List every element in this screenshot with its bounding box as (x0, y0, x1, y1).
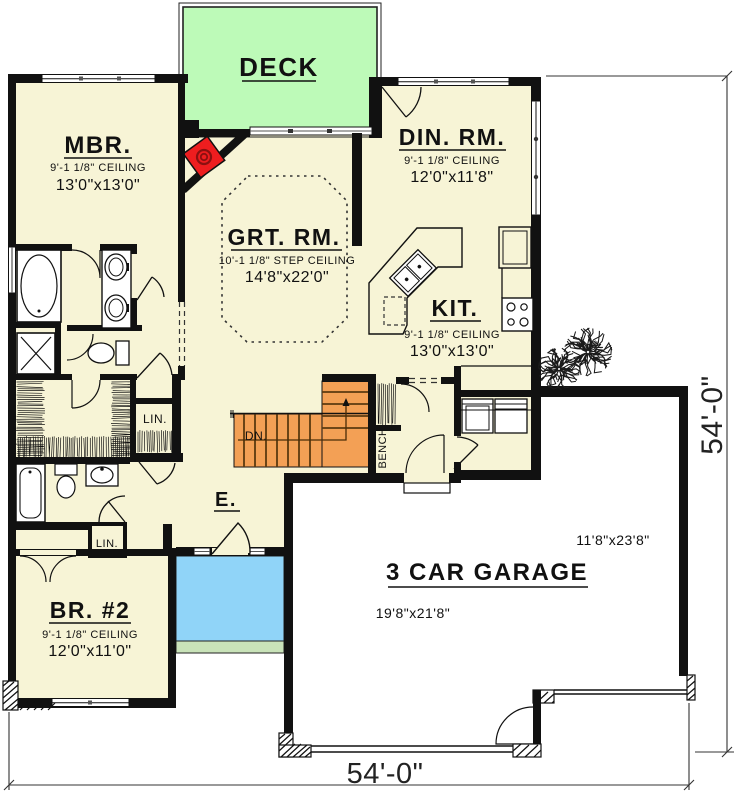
svg-text:11'8"x23'8": 11'8"x23'8" (576, 532, 649, 548)
svg-text:9'-1 1/8" CEILING: 9'-1 1/8" CEILING (42, 629, 138, 641)
svg-text:54'-0": 54'-0" (696, 375, 729, 454)
svg-text:13'0"x13'0": 13'0"x13'0" (56, 177, 140, 194)
svg-text:LIN.: LIN. (96, 538, 118, 550)
svg-text:12'0"x11'8": 12'0"x11'8" (410, 169, 493, 186)
svg-text:E.: E. (215, 489, 237, 511)
svg-text:9'-1 1/8" CEILING: 9'-1 1/8" CEILING (404, 155, 500, 167)
svg-text:10'-1 1/8" STEP CEILING: 10'-1 1/8" STEP CEILING (219, 255, 356, 267)
svg-text:14'8"x22'0": 14'8"x22'0" (245, 269, 329, 286)
svg-text:DECK: DECK (239, 52, 319, 82)
svg-text:13'0"x13'0": 13'0"x13'0" (410, 343, 494, 360)
svg-text:GRT. RM.: GRT. RM. (228, 224, 341, 250)
svg-text:BR. #2: BR. #2 (50, 597, 131, 623)
svg-text:9'-1 1/8" CEILING: 9'-1 1/8" CEILING (50, 162, 146, 174)
svg-text:MBR.: MBR. (64, 132, 131, 159)
svg-text:KIT.: KIT. (432, 295, 479, 321)
svg-text:DIN. RM.: DIN. RM. (399, 124, 506, 150)
svg-text:LIN.: LIN. (143, 412, 167, 426)
svg-text:12'0"x11'0": 12'0"x11'0" (48, 643, 131, 660)
svg-text:DN.: DN. (245, 429, 267, 443)
svg-text:BENCH: BENCH (377, 427, 389, 468)
svg-text:54'-0": 54'-0" (347, 758, 424, 790)
svg-text:3 CAR GARAGE: 3 CAR GARAGE (386, 559, 588, 586)
svg-text:19'8"x21'8": 19'8"x21'8" (376, 605, 451, 621)
svg-text:9'-1 1/8" CEILING: 9'-1 1/8" CEILING (404, 329, 500, 341)
